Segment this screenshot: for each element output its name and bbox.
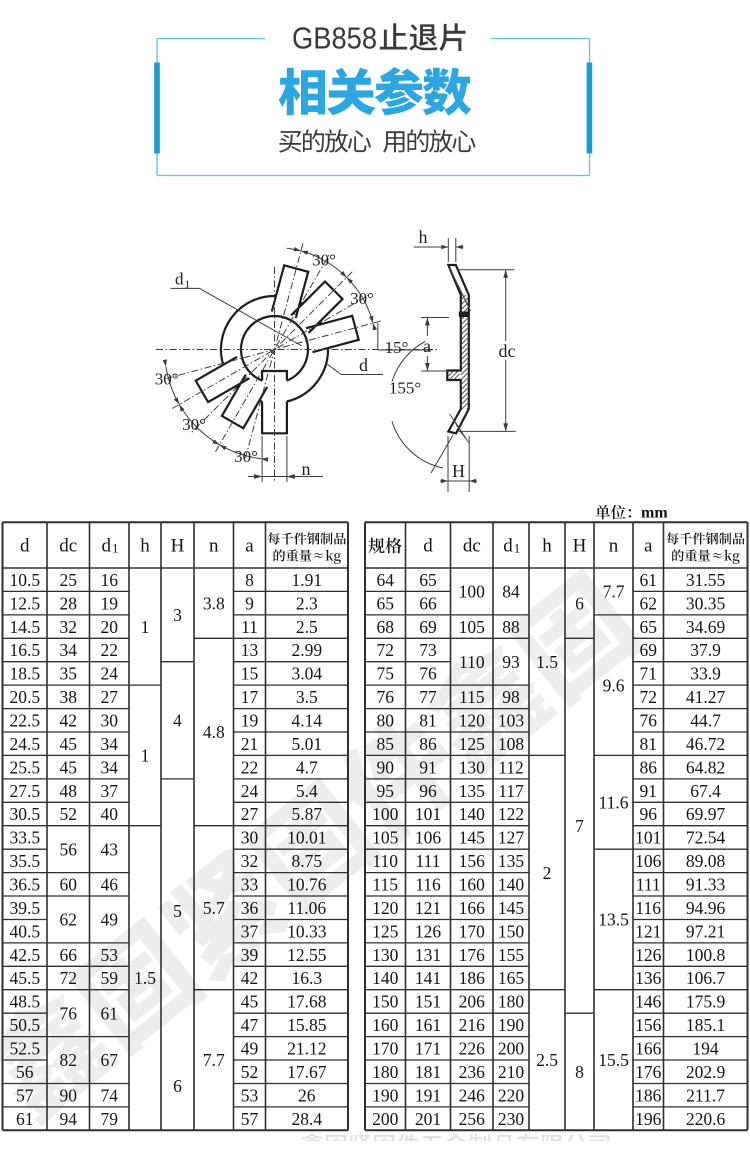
svg-text:71: 71 (639, 664, 657, 684)
svg-text:2.3: 2.3 (296, 593, 318, 613)
svg-text:2: 2 (543, 863, 552, 883)
svg-text:150: 150 (498, 921, 525, 941)
svg-text:186: 186 (459, 968, 486, 988)
svg-text:46.72: 46.72 (686, 734, 725, 754)
svg-text:256: 256 (459, 1109, 486, 1129)
svg-text:125: 125 (459, 734, 486, 754)
svg-text:34: 34 (100, 757, 118, 777)
svg-text:21.12: 21.12 (287, 1039, 326, 1059)
svg-text:d: d (359, 355, 368, 375)
svg-text:220.6: 220.6 (686, 1109, 726, 1129)
svg-text:d: d (20, 536, 30, 557)
svg-text:67: 67 (100, 1050, 118, 1070)
svg-text:236: 236 (459, 1062, 486, 1082)
svg-text:3.8: 3.8 (203, 593, 225, 613)
svg-text:40.5: 40.5 (9, 921, 40, 941)
svg-text:116: 116 (635, 898, 661, 918)
svg-text:10.01: 10.01 (287, 828, 326, 848)
svg-text:15.5: 15.5 (598, 1050, 629, 1070)
svg-text:140: 140 (498, 875, 525, 895)
svg-text:196: 196 (635, 1109, 662, 1129)
svg-text:48: 48 (59, 781, 77, 801)
svg-text:108: 108 (498, 734, 525, 754)
svg-text:145: 145 (459, 828, 486, 848)
svg-text:76: 76 (419, 664, 437, 684)
svg-text:88: 88 (502, 617, 520, 637)
svg-text:98: 98 (502, 687, 520, 707)
svg-text:230: 230 (498, 1109, 525, 1129)
svg-text:74: 74 (100, 1085, 118, 1105)
svg-text:146: 146 (635, 992, 662, 1012)
svg-text:a: a (423, 336, 431, 356)
svg-text:76: 76 (59, 1003, 77, 1023)
svg-text:45: 45 (241, 992, 259, 1012)
svg-text:7.7: 7.7 (603, 582, 625, 602)
svg-text:1: 1 (514, 541, 521, 556)
svg-text:216: 216 (459, 1015, 486, 1035)
svg-text:15.85: 15.85 (287, 1015, 327, 1035)
svg-text:100: 100 (372, 804, 399, 824)
svg-text:81: 81 (419, 711, 437, 731)
svg-text:d: d (175, 270, 184, 289)
svg-text:11: 11 (241, 617, 258, 637)
svg-text:105: 105 (459, 617, 486, 637)
svg-text:h: h (140, 536, 150, 557)
svg-text:69: 69 (639, 640, 657, 660)
svg-text:28: 28 (59, 593, 77, 613)
svg-text:39.5: 39.5 (9, 898, 40, 918)
svg-text:75: 75 (376, 664, 394, 684)
svg-text:34: 34 (100, 734, 118, 754)
svg-text:94: 94 (59, 1109, 77, 1129)
svg-text:106: 106 (635, 851, 662, 871)
svg-text:81: 81 (639, 734, 657, 754)
svg-text:42.5: 42.5 (9, 945, 40, 965)
svg-text:5.01: 5.01 (291, 734, 322, 754)
svg-text:90: 90 (376, 757, 394, 777)
svg-text:100: 100 (459, 582, 486, 602)
svg-text:72.54: 72.54 (686, 828, 726, 848)
svg-text:6: 6 (173, 1076, 182, 1096)
svg-text:125: 125 (372, 921, 399, 941)
svg-text:86: 86 (639, 757, 657, 777)
svg-text:91.33: 91.33 (686, 875, 726, 895)
svg-text:1.5: 1.5 (134, 968, 156, 988)
svg-text:112: 112 (498, 757, 524, 777)
svg-text:24.5: 24.5 (9, 734, 40, 754)
svg-text:53: 53 (241, 1085, 259, 1105)
svg-text:8: 8 (575, 1062, 584, 1082)
svg-text:1.91: 1.91 (291, 570, 322, 590)
svg-text:200: 200 (372, 1109, 399, 1129)
svg-text:165: 165 (498, 968, 525, 988)
svg-text:4.7: 4.7 (296, 757, 318, 777)
svg-text:24: 24 (100, 664, 118, 684)
svg-text:22: 22 (100, 640, 118, 660)
svg-text:h: h (419, 227, 428, 247)
svg-text:9: 9 (245, 593, 254, 613)
svg-text:36.5: 36.5 (9, 875, 40, 895)
svg-text:95: 95 (376, 781, 394, 801)
svg-text:64: 64 (376, 570, 394, 590)
svg-text:8.75: 8.75 (291, 851, 322, 871)
svg-text:190: 190 (372, 1085, 399, 1105)
svg-text:n: n (302, 459, 311, 479)
svg-text:33.9: 33.9 (690, 664, 721, 684)
svg-text:12.5: 12.5 (9, 593, 40, 613)
svg-text:45: 45 (59, 757, 77, 777)
svg-text:117: 117 (498, 781, 524, 801)
svg-text:94.96: 94.96 (686, 898, 726, 918)
svg-text:50.5: 50.5 (9, 1015, 40, 1035)
svg-text:27: 27 (241, 804, 259, 824)
svg-text:62: 62 (59, 910, 77, 930)
svg-text:4.14: 4.14 (291, 711, 322, 731)
svg-text:79: 79 (100, 1109, 118, 1129)
svg-text:56: 56 (16, 1062, 34, 1082)
svg-text:57: 57 (241, 1109, 259, 1129)
svg-text:84: 84 (502, 582, 520, 602)
svg-text:80: 80 (376, 711, 394, 731)
svg-text:dc: dc (59, 536, 77, 557)
svg-text:1: 1 (141, 617, 150, 637)
svg-text:67.4: 67.4 (690, 781, 721, 801)
svg-text:37.9: 37.9 (690, 640, 721, 660)
svg-text:n: n (209, 536, 219, 557)
svg-text:30.5: 30.5 (9, 804, 40, 824)
svg-text:140: 140 (372, 968, 399, 988)
svg-text:30°: 30° (312, 251, 336, 270)
svg-text:2.99: 2.99 (291, 640, 322, 660)
svg-text:32: 32 (59, 617, 77, 637)
svg-text:53: 53 (100, 945, 118, 965)
svg-text:25: 25 (59, 570, 77, 590)
svg-text:41.27: 41.27 (686, 687, 726, 707)
svg-text:61: 61 (16, 1109, 34, 1129)
svg-text:9.6: 9.6 (603, 675, 625, 695)
svg-text:96: 96 (419, 781, 437, 801)
svg-text:111: 111 (636, 875, 661, 895)
svg-text:181: 181 (415, 1062, 441, 1082)
svg-text:111: 111 (416, 851, 441, 871)
svg-text:d: d (503, 536, 513, 557)
svg-text:61: 61 (100, 1003, 118, 1023)
svg-text:110: 110 (459, 652, 485, 672)
svg-text:60: 60 (59, 875, 77, 895)
svg-text:26: 26 (298, 1085, 316, 1105)
svg-text:110: 110 (372, 851, 398, 871)
svg-text:35: 35 (59, 664, 77, 684)
svg-text:32: 32 (241, 851, 259, 871)
svg-text:103: 103 (498, 711, 525, 731)
svg-text:a: a (644, 536, 653, 557)
svg-text:59: 59 (100, 968, 118, 988)
svg-text:160: 160 (459, 875, 486, 895)
svg-text:166: 166 (635, 1039, 662, 1059)
svg-text:90: 90 (59, 1085, 77, 1105)
svg-text:166: 166 (459, 898, 486, 918)
svg-text:33: 33 (241, 875, 259, 895)
svg-text:11.6: 11.6 (599, 793, 629, 813)
svg-text:1.5: 1.5 (536, 652, 558, 672)
svg-text:82: 82 (59, 1050, 77, 1070)
svg-text:H: H (452, 461, 465, 481)
svg-text:91: 91 (419, 757, 437, 777)
svg-text:38: 38 (59, 687, 77, 707)
svg-text:175.9: 175.9 (686, 992, 726, 1012)
svg-text:140: 140 (459, 804, 486, 824)
svg-text:28.4: 28.4 (291, 1109, 322, 1129)
svg-text:35.5: 35.5 (9, 851, 40, 871)
svg-text:69.97: 69.97 (686, 804, 726, 824)
svg-text:120: 120 (459, 711, 486, 731)
svg-text:2.5: 2.5 (296, 617, 318, 637)
svg-text:69: 69 (419, 617, 437, 637)
svg-text:22: 22 (241, 757, 259, 777)
svg-text:93: 93 (502, 652, 520, 672)
svg-text:GB858: GB858 (292, 21, 377, 56)
svg-text:61: 61 (639, 570, 657, 590)
svg-text:194: 194 (692, 1039, 719, 1059)
svg-text:73: 73 (419, 640, 437, 660)
svg-text:46: 46 (100, 875, 118, 895)
svg-text:171: 171 (415, 1039, 441, 1059)
svg-text:48.5: 48.5 (9, 992, 40, 1012)
svg-text:10.33: 10.33 (287, 921, 327, 941)
svg-text:89.08: 89.08 (686, 851, 726, 871)
svg-text:186: 186 (635, 1085, 662, 1105)
svg-text:37: 37 (100, 781, 118, 801)
svg-text:85: 85 (376, 734, 394, 754)
svg-text:246: 246 (459, 1085, 486, 1105)
svg-text:91: 91 (639, 781, 657, 801)
svg-text:27.5: 27.5 (9, 781, 40, 801)
svg-text:49: 49 (100, 910, 118, 930)
svg-text:10.5: 10.5 (9, 570, 40, 590)
svg-text:121: 121 (635, 921, 661, 941)
svg-text:202.9: 202.9 (686, 1062, 726, 1082)
svg-text:1: 1 (141, 746, 150, 766)
svg-text:101: 101 (635, 828, 661, 848)
svg-text:176: 176 (459, 945, 486, 965)
svg-text:mm: mm (641, 505, 668, 522)
svg-text:20: 20 (100, 617, 118, 637)
svg-text:13.5: 13.5 (598, 910, 629, 930)
svg-text:115: 115 (372, 875, 398, 895)
svg-text:161: 161 (415, 1015, 441, 1035)
svg-text:66: 66 (419, 593, 437, 613)
svg-text:3: 3 (173, 605, 182, 625)
svg-text:5.4: 5.4 (296, 781, 318, 801)
svg-text:42: 42 (241, 968, 259, 988)
svg-text:7.7: 7.7 (203, 1050, 225, 1070)
svg-text:116: 116 (415, 875, 441, 895)
svg-text:122: 122 (498, 804, 524, 824)
svg-text:62: 62 (639, 593, 657, 613)
svg-text:65: 65 (376, 593, 394, 613)
svg-text:45: 45 (59, 734, 77, 754)
svg-text:66: 66 (59, 945, 77, 965)
svg-text:49: 49 (241, 1039, 259, 1059)
svg-text:97.21: 97.21 (686, 921, 725, 941)
svg-text:151: 151 (415, 992, 441, 1012)
svg-text:25.5: 25.5 (9, 757, 40, 777)
svg-text:13: 13 (241, 640, 259, 660)
svg-text:65: 65 (419, 570, 437, 590)
svg-text:4.8: 4.8 (203, 722, 225, 742)
svg-text:115: 115 (459, 687, 485, 707)
svg-text:76: 76 (376, 687, 394, 707)
svg-text:16.3: 16.3 (291, 968, 322, 988)
svg-text:1: 1 (112, 541, 119, 556)
svg-text:4: 4 (173, 711, 182, 731)
svg-text:105: 105 (372, 828, 399, 848)
svg-text:101: 101 (415, 804, 441, 824)
svg-text:145: 145 (498, 898, 525, 918)
svg-text:30°: 30° (234, 447, 258, 466)
svg-text:dc: dc (499, 341, 516, 361)
svg-text:135: 135 (459, 781, 486, 801)
svg-text:a: a (245, 536, 254, 557)
svg-text:3.5: 3.5 (296, 687, 318, 707)
svg-text:201: 201 (415, 1109, 441, 1129)
svg-text:220: 220 (498, 1085, 525, 1105)
svg-text:43: 43 (100, 839, 118, 859)
svg-text:170: 170 (459, 921, 486, 941)
svg-text:106.7: 106.7 (686, 968, 726, 988)
svg-text:57: 57 (16, 1085, 34, 1105)
svg-text:30°: 30° (350, 289, 374, 308)
svg-text:7: 7 (575, 816, 584, 836)
svg-text:121: 121 (415, 898, 441, 918)
svg-text:150: 150 (372, 992, 399, 1012)
svg-text:131: 131 (415, 945, 441, 965)
svg-text:52.5: 52.5 (9, 1039, 40, 1059)
svg-text:10.76: 10.76 (287, 875, 327, 895)
svg-text:17.67: 17.67 (287, 1062, 327, 1082)
svg-text:200: 200 (498, 1039, 525, 1059)
svg-text:H: H (573, 536, 587, 557)
svg-text:31.55: 31.55 (686, 570, 726, 590)
svg-text:141: 141 (415, 968, 441, 988)
svg-text:H: H (171, 536, 185, 557)
svg-text:40: 40 (100, 804, 118, 824)
svg-text:17.68: 17.68 (287, 992, 327, 1012)
svg-text:27: 27 (100, 687, 118, 707)
svg-text:14.5: 14.5 (9, 617, 40, 637)
svg-text:52: 52 (241, 1062, 259, 1082)
svg-text:6: 6 (575, 593, 584, 613)
svg-text:5.87: 5.87 (291, 804, 322, 824)
svg-text:76: 76 (639, 711, 657, 731)
svg-text:30°: 30° (182, 415, 206, 434)
svg-text:17: 17 (241, 687, 259, 707)
svg-text:96: 96 (639, 804, 657, 824)
svg-text:n: n (609, 536, 619, 557)
svg-text:19: 19 (241, 711, 259, 731)
svg-text:30°: 30° (155, 370, 179, 389)
svg-text:16.5: 16.5 (9, 640, 40, 660)
svg-text:156: 156 (635, 1015, 662, 1035)
svg-text:2.5: 2.5 (536, 1050, 558, 1070)
svg-text:170: 170 (372, 1039, 399, 1059)
svg-text:226: 226 (459, 1039, 486, 1059)
svg-text:5.7: 5.7 (203, 898, 225, 918)
svg-text:3.04: 3.04 (291, 664, 322, 684)
svg-text:156: 156 (459, 851, 486, 871)
svg-text:34: 34 (59, 640, 77, 660)
svg-text:11.06: 11.06 (287, 898, 326, 918)
svg-text:68: 68 (376, 617, 394, 637)
svg-text:77: 77 (419, 687, 437, 707)
svg-text:30.35: 30.35 (686, 593, 726, 613)
svg-text:36: 36 (241, 898, 259, 918)
svg-text:52: 52 (59, 804, 77, 824)
svg-text:100.8: 100.8 (686, 945, 726, 965)
svg-text:72: 72 (59, 968, 77, 988)
svg-text:64.82: 64.82 (686, 757, 725, 777)
svg-text:5: 5 (173, 901, 182, 921)
svg-text:126: 126 (635, 945, 662, 965)
svg-text:19: 19 (100, 593, 118, 613)
svg-text:22.5: 22.5 (9, 711, 40, 731)
svg-text:155: 155 (498, 945, 525, 965)
svg-text:190: 190 (498, 1015, 525, 1035)
svg-text:180: 180 (498, 992, 525, 1012)
svg-text:d: d (423, 536, 433, 557)
svg-text:37: 37 (241, 921, 259, 941)
svg-text:130: 130 (372, 945, 399, 965)
svg-text:42: 42 (59, 711, 77, 731)
svg-text:45.5: 45.5 (9, 968, 40, 988)
svg-text:185.1: 185.1 (686, 1015, 725, 1035)
svg-text:dc: dc (463, 536, 481, 557)
svg-text:20.5: 20.5 (9, 687, 40, 707)
svg-text:120: 120 (372, 898, 399, 918)
svg-text:155°: 155° (389, 379, 421, 398)
svg-text:30: 30 (241, 828, 259, 848)
svg-text:8: 8 (245, 570, 254, 590)
svg-text:21: 21 (241, 734, 259, 754)
svg-text:86: 86 (419, 734, 437, 754)
svg-text:12.55: 12.55 (287, 945, 327, 965)
svg-text:72: 72 (639, 687, 657, 707)
svg-text:d: d (101, 536, 111, 557)
svg-text:33.5: 33.5 (9, 828, 40, 848)
svg-text:47: 47 (241, 1015, 259, 1035)
svg-text:h: h (542, 536, 552, 557)
svg-text:136: 136 (635, 968, 662, 988)
svg-text:65: 65 (639, 617, 657, 637)
svg-text:15°: 15° (385, 338, 409, 357)
svg-text:180: 180 (372, 1062, 399, 1082)
svg-text:44.7: 44.7 (690, 711, 721, 731)
svg-text:39: 39 (241, 945, 259, 965)
svg-text:176: 176 (635, 1062, 662, 1082)
svg-text:210: 210 (498, 1062, 525, 1082)
svg-text:34.69: 34.69 (686, 617, 726, 637)
svg-text:160: 160 (372, 1015, 399, 1035)
svg-text:18.5: 18.5 (9, 664, 40, 684)
svg-text:16: 16 (100, 570, 118, 590)
svg-text:135: 135 (498, 851, 525, 871)
svg-text:24: 24 (241, 781, 259, 801)
svg-text:127: 127 (498, 828, 525, 848)
svg-text:30: 30 (100, 711, 118, 731)
svg-text:106: 106 (415, 828, 442, 848)
svg-text:191: 191 (415, 1085, 441, 1105)
svg-text:56: 56 (59, 839, 77, 859)
